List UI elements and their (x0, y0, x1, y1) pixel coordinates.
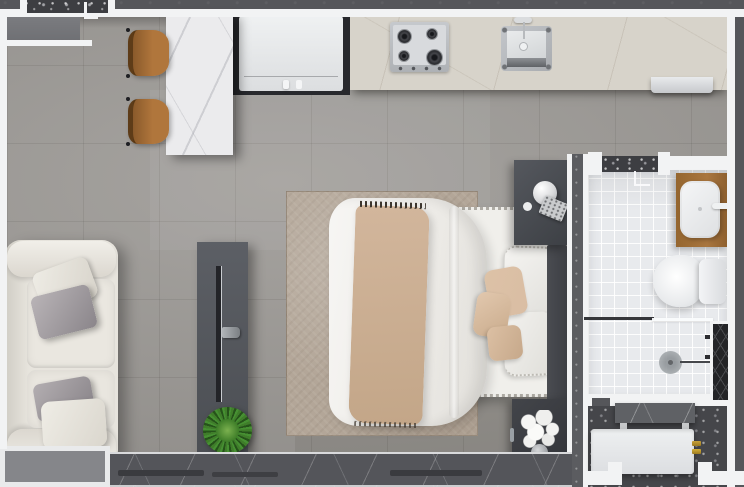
door-jamb (588, 152, 602, 175)
door-jamb (108, 0, 115, 17)
deco-object (523, 202, 532, 211)
burner-icon (426, 49, 443, 66)
service-shaft (710, 321, 731, 403)
interior-wall (567, 154, 588, 487)
cooktop-knobs (394, 66, 446, 71)
balcony-parapet (0, 446, 110, 487)
window-track-slat (118, 470, 204, 476)
throw-blanket (348, 205, 430, 425)
tv-mount (222, 327, 240, 338)
sink-rim-shadow (507, 58, 546, 67)
exterior-wall (0, 9, 7, 449)
sink-sprayer (519, 42, 528, 51)
entry-alcove-wall (0, 16, 80, 41)
bathroom-door-threshold (602, 156, 658, 172)
dining-table (166, 14, 233, 155)
shower-drain (659, 351, 682, 374)
exterior-wall (727, 9, 735, 487)
vanity-basin (680, 181, 720, 238)
washing-appliance (591, 429, 694, 474)
toilet (653, 255, 705, 307)
door-jamb (698, 462, 712, 485)
bed-pillow (486, 324, 523, 361)
brass-valve (692, 449, 701, 454)
headboard (547, 245, 567, 403)
door-swing-icon (634, 171, 650, 186)
window-track-slat (390, 470, 482, 476)
sink-faucet-hose (523, 22, 525, 39)
nightstand-handle (510, 428, 514, 442)
shower-screen (584, 317, 654, 320)
sofa-pillow (40, 398, 107, 450)
burner-icon (397, 29, 412, 44)
door-jamb (20, 0, 27, 17)
utility-counter (615, 403, 695, 423)
shower-arm (680, 361, 713, 363)
dining-chair (128, 99, 169, 144)
window-track-slat (212, 472, 278, 477)
bathroom-wall (668, 156, 728, 170)
door-jamb (608, 462, 622, 485)
refrigerator (239, 16, 343, 91)
brass-valve (692, 441, 701, 446)
door-swing-icon (84, 2, 98, 19)
under-counter-appliance (651, 77, 713, 93)
toilet-cistern (699, 259, 726, 304)
dining-chair (128, 30, 169, 76)
shower-screen (652, 318, 713, 321)
potted-plant (203, 407, 252, 454)
burner-icon (398, 50, 410, 62)
burner-icon (426, 28, 438, 40)
floor-plan (0, 0, 744, 487)
entry-alcove-wall-line (0, 40, 92, 46)
